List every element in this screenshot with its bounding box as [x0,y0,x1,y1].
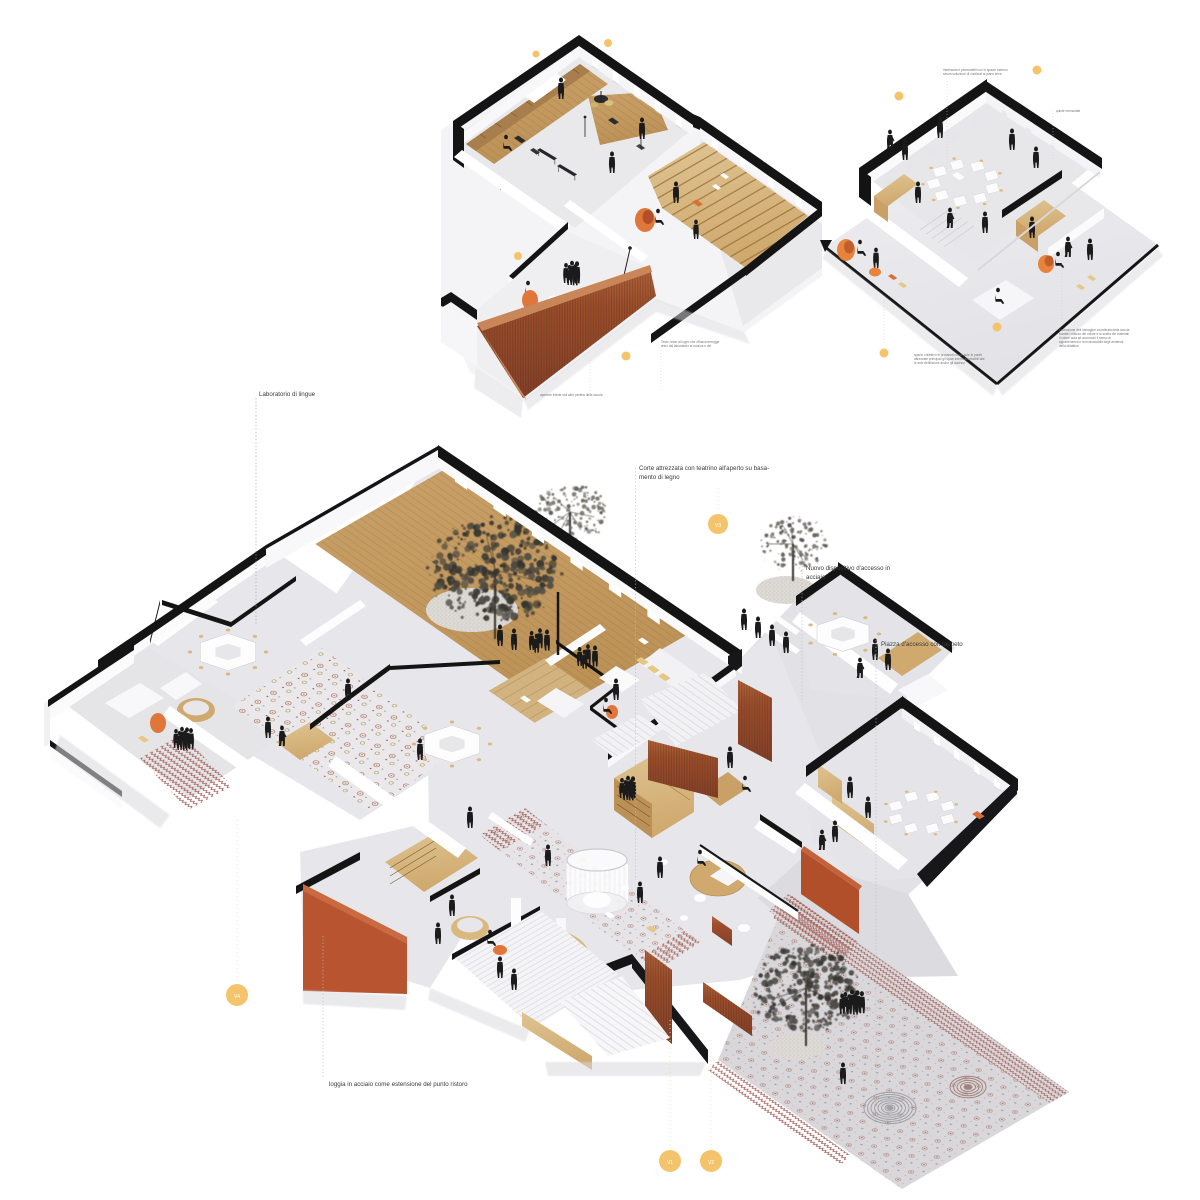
svg-text:Piazza d'accesso con tappeto: Piazza d'accesso con tappeto [881,641,963,648]
svg-text:senza soluzione di continuit a: senza soluzione di continuit al piano te… [943,72,1002,76]
svg-text:testo dal laboratorio al music: testo dal laboratorio al musica e del [661,344,711,348]
svg-text:V3: V3 [715,523,721,529]
svg-text:le aule definizione anche gli: le aule definizione anche gli accessi [914,361,965,365]
svg-text:V1: V1 [667,1160,673,1166]
svg-text:Laboratorio di lingue: Laboratorio di lingue [259,391,316,398]
svg-text:Corte attrezzata con teatrino: Corte attrezzata con teatrino all'aperto… [639,465,769,472]
svg-text:aperture intede sull altro per: aperture intede sull altro pertina della… [540,393,603,397]
svg-text:mento di legno: mento di legno [639,474,680,481]
svg-text:V4: V4 [234,994,240,1000]
svg-text:Nuovo dispositivo d'accesso in: Nuovo dispositivo d'accesso in [806,565,891,572]
svg-text:acciaio: acciaio [806,574,826,581]
svg-text:loggia in acciaio come estensi: loggia in acciaio come estensione del pu… [329,1081,468,1088]
svg-text:V2: V2 [708,1160,714,1166]
svg-text:della didattica: della didattica [1059,344,1079,348]
svg-text:quinte mensolate: quinte mensolate [1056,109,1081,113]
